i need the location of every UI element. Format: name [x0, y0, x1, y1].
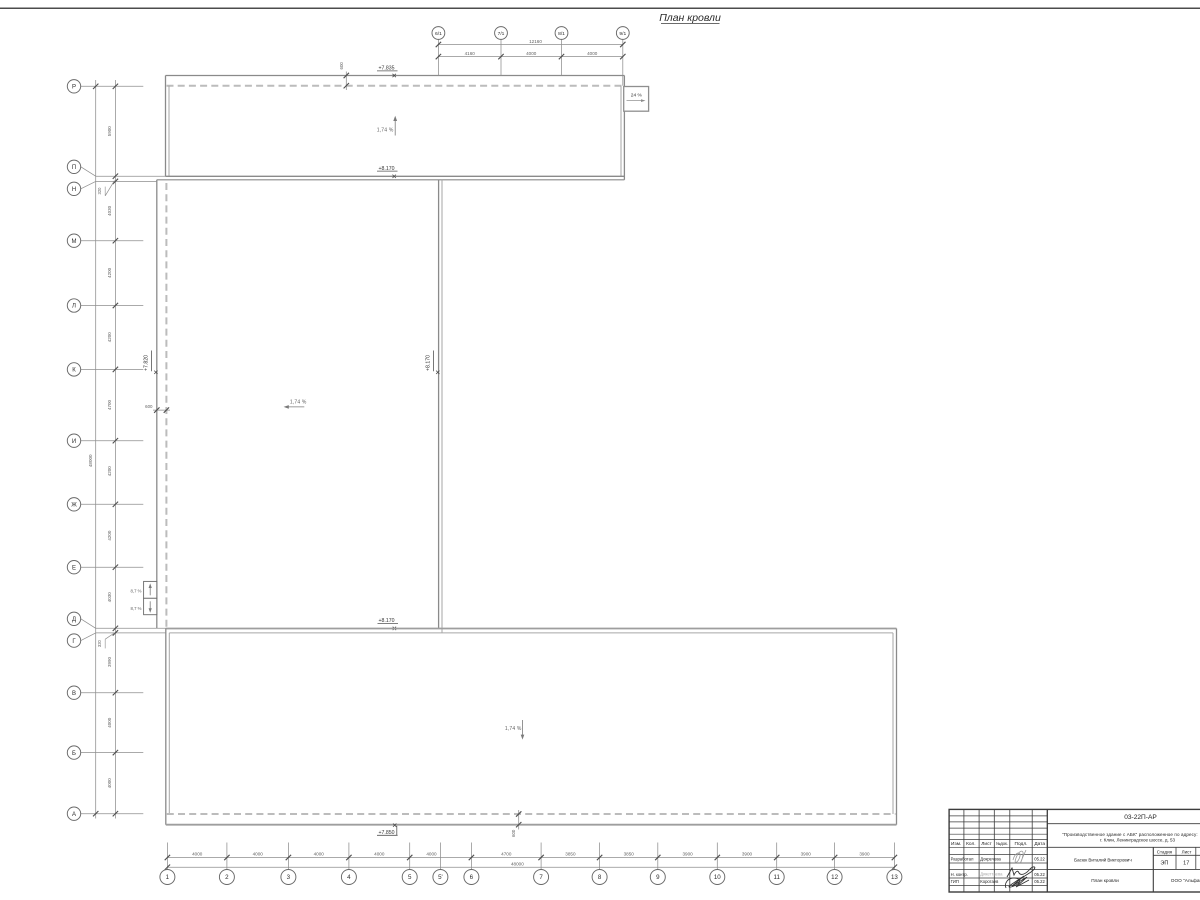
- svg-text:03-22П-АР: 03-22П-АР: [1124, 814, 1157, 821]
- svg-text:600: 600: [145, 404, 153, 409]
- svg-text:9/1: 9/1: [619, 31, 626, 37]
- svg-text:5': 5': [438, 874, 443, 881]
- svg-text:1,74 %: 1,74 %: [290, 400, 307, 406]
- svg-text:Д: Д: [72, 617, 76, 623]
- svg-text:План кровли: План кровли: [659, 12, 721, 24]
- svg-text:3900: 3900: [801, 852, 812, 857]
- svg-text:Лист: Лист: [981, 841, 992, 847]
- svg-text:Н. контр.: Н. контр.: [951, 872, 968, 877]
- svg-text:4030: 4030: [107, 592, 112, 603]
- svg-text:4000: 4000: [253, 852, 264, 857]
- svg-text:И: И: [72, 439, 76, 445]
- svg-text:Б: Б: [72, 751, 76, 757]
- svg-text:5900: 5900: [107, 126, 112, 137]
- svg-text:П: П: [72, 165, 76, 171]
- svg-text:3900: 3900: [682, 852, 693, 857]
- svg-text:3850: 3850: [624, 852, 635, 857]
- svg-text:г. Клин, Ленинградское шоссе,: г. Клин, Ленинградское шоссе, д. 53: [1100, 838, 1175, 843]
- svg-text:8,7 %: 8,7 %: [131, 606, 142, 611]
- svg-text:600: 600: [339, 62, 344, 70]
- svg-text:4200: 4200: [107, 332, 112, 343]
- svg-text:4: 4: [347, 874, 351, 881]
- svg-text:05.22: 05.22: [1034, 857, 1045, 862]
- svg-text:11: 11: [773, 874, 780, 881]
- svg-text:4000: 4000: [314, 852, 325, 857]
- svg-text:05.22: 05.22: [1034, 872, 1045, 877]
- svg-text:4200: 4200: [107, 267, 112, 278]
- svg-text:Стадия: Стадия: [1157, 850, 1173, 855]
- svg-text:1: 1: [166, 874, 170, 881]
- svg-text:4000: 4000: [426, 852, 437, 857]
- svg-text:ЭП: ЭП: [1160, 861, 1168, 867]
- svg-text:12: 12: [831, 874, 838, 881]
- svg-text:Коротаев: Коротаев: [980, 879, 999, 884]
- svg-text:М: М: [72, 239, 77, 245]
- svg-text:Р: Р: [72, 84, 76, 90]
- svg-text:Изм.: Изм.: [951, 841, 961, 847]
- svg-text:4200: 4200: [107, 530, 112, 541]
- svg-text:8/1: 8/1: [558, 31, 565, 37]
- svg-text:5: 5: [408, 874, 412, 881]
- svg-text:3850: 3850: [565, 852, 576, 857]
- svg-text:05.22: 05.22: [1034, 879, 1045, 884]
- svg-text:В: В: [72, 691, 76, 697]
- svg-text:48000: 48000: [511, 862, 524, 867]
- svg-text:7: 7: [539, 874, 543, 881]
- svg-text:6/1: 6/1: [435, 31, 442, 37]
- svg-text:10: 10: [714, 874, 721, 881]
- svg-text:Докречева: Докречева: [980, 856, 1001, 861]
- svg-text:8: 8: [598, 874, 602, 881]
- svg-text:6: 6: [470, 874, 474, 881]
- svg-text:24 %: 24 %: [631, 92, 643, 98]
- svg-text:Ж: Ж: [71, 502, 77, 508]
- svg-text:Л: Л: [72, 304, 76, 310]
- svg-text:"Производственное здание с АБК: "Производственное здание с АБК" располож…: [1062, 832, 1198, 837]
- svg-text:48000: 48000: [88, 454, 93, 467]
- svg-text:Разработал: Разработал: [951, 857, 974, 862]
- svg-text:Кол.: Кол.: [966, 841, 976, 847]
- svg-text:600: 600: [511, 829, 516, 837]
- svg-text:К: К: [72, 368, 76, 374]
- svg-text:4000: 4000: [526, 51, 537, 56]
- svg-text:ГИП: ГИП: [951, 879, 959, 884]
- svg-text:12160: 12160: [529, 39, 542, 44]
- svg-text:2: 2: [225, 874, 229, 881]
- svg-text:Дикеттаева: Дикеттаева: [980, 872, 1003, 877]
- svg-text:4000: 4000: [107, 778, 112, 789]
- svg-text:17: 17: [1183, 861, 1189, 867]
- svg-text:4000: 4000: [374, 852, 385, 857]
- svg-text:4000: 4000: [587, 51, 598, 56]
- svg-text:+8.170: +8.170: [426, 355, 432, 371]
- svg-text:№док.: №док.: [996, 841, 1008, 846]
- svg-text:Е: Е: [72, 565, 76, 571]
- svg-text:4200: 4200: [107, 466, 112, 477]
- svg-text:3: 3: [287, 874, 291, 881]
- svg-text:4000: 4000: [107, 717, 112, 728]
- svg-text:План кровли: План кровли: [1091, 878, 1119, 883]
- svg-text:3900: 3900: [742, 852, 753, 857]
- svg-text:1,74 %: 1,74 %: [377, 128, 394, 134]
- svg-text:320: 320: [97, 639, 102, 647]
- svg-text:4030: 4030: [107, 205, 112, 216]
- svg-text:Н: Н: [72, 187, 76, 193]
- svg-text:Лист: Лист: [1182, 850, 1192, 855]
- svg-text:13: 13: [891, 874, 898, 881]
- svg-text:9: 9: [656, 874, 660, 881]
- svg-text:Дата: Дата: [1034, 841, 1045, 847]
- svg-text:320: 320: [97, 187, 102, 195]
- svg-text:4000: 4000: [192, 852, 203, 857]
- svg-text:8,7 %: 8,7 %: [131, 589, 142, 594]
- svg-text:3900: 3900: [859, 852, 870, 857]
- svg-text:7/1: 7/1: [498, 31, 505, 37]
- svg-text:Подл.: Подл.: [1015, 841, 1028, 847]
- svg-text:3990: 3990: [107, 656, 112, 667]
- svg-text:1,74 %: 1,74 %: [505, 726, 522, 732]
- svg-text:ООО "Альфапроект": ООО "Альфапроект": [1171, 878, 1200, 883]
- svg-text:Басюк Виталий Викторович: Басюк Виталий Викторович: [1074, 857, 1132, 863]
- svg-text:4700: 4700: [107, 399, 112, 410]
- svg-text:А: А: [72, 812, 76, 818]
- svg-text:4700: 4700: [501, 852, 512, 857]
- svg-text:4160: 4160: [465, 51, 476, 56]
- svg-text:+7.820: +7.820: [143, 355, 149, 371]
